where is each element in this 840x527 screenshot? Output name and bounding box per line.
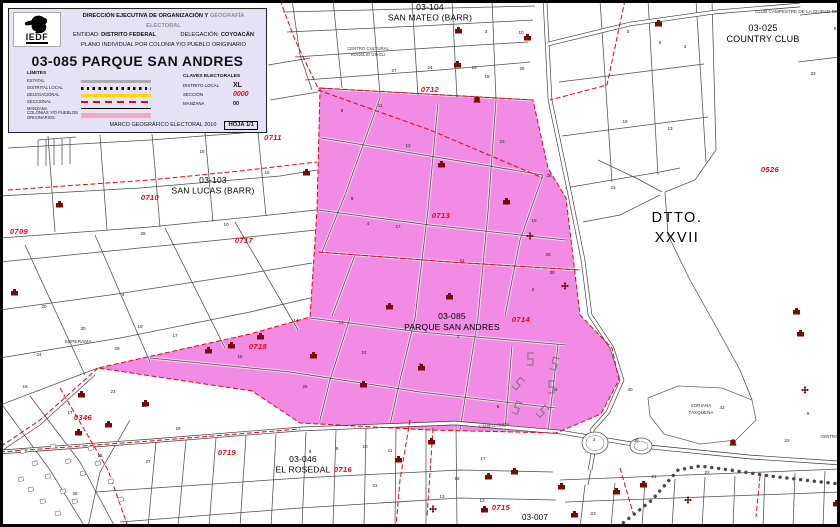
section-number-label: 0719 — [218, 448, 237, 457]
block-number: 15 — [264, 170, 270, 175]
block-number: 10 — [471, 65, 477, 70]
block-number: 6 — [659, 40, 662, 45]
block-number: 23 — [610, 185, 616, 190]
area-label: 03-025 — [748, 23, 777, 33]
map-small-label: CENTRO CULTURAL — [347, 46, 389, 51]
cross-part — [806, 389, 808, 391]
delegation: DELEGACIÓN: COYOACÁN — [180, 31, 254, 41]
cross-part — [564, 285, 566, 287]
tiny-block — [55, 511, 61, 516]
building-roof — [80, 391, 83, 393]
cross-part — [687, 497, 689, 499]
block-number: 16 — [22, 384, 28, 389]
building-roof — [560, 483, 563, 485]
building-body — [11, 291, 18, 296]
tiny-block — [88, 446, 94, 451]
section-number-label: 0714 — [512, 315, 531, 324]
block-number: 6 — [419, 362, 422, 367]
dome-base — [474, 101, 480, 103]
building-body — [360, 383, 367, 388]
block-number: 39 — [633, 438, 639, 443]
building-roof — [573, 511, 576, 513]
tiny-block — [18, 477, 24, 482]
building-body — [571, 513, 578, 518]
section-number-label: 0715 — [492, 503, 511, 512]
tiny-block — [50, 444, 56, 449]
block-number: 26 — [546, 173, 552, 178]
block-number: 19 — [175, 426, 181, 431]
block-number: 17 — [480, 456, 486, 461]
building-body — [228, 344, 235, 349]
clave-value: XL — [233, 82, 242, 89]
block-number: 26 — [302, 384, 308, 389]
building-roof — [305, 169, 308, 171]
cross-part — [432, 510, 434, 512]
building-body — [386, 305, 393, 310]
block-number: 15 — [622, 119, 628, 124]
dove-icon — [24, 15, 50, 33]
block-number: 25 — [545, 252, 551, 257]
block-number: 9 — [807, 411, 810, 416]
clave-row: MANZANA00 — [183, 99, 262, 108]
block-number: 30 — [549, 270, 555, 275]
block-number: 4 — [555, 387, 558, 392]
cross-part — [687, 501, 689, 503]
building-roof — [430, 438, 433, 440]
limit-row: DELEGACIONAL — [27, 92, 175, 99]
tiny-block — [108, 479, 114, 484]
cross-part — [804, 389, 806, 391]
block-number: 8 — [834, 26, 837, 31]
block-number: 20 — [41, 304, 47, 309]
building-roof — [505, 198, 508, 200]
clave-row: SECCIÓN0000 — [183, 90, 262, 99]
building-body — [655, 22, 662, 27]
map-small-label: CLUB CAMPESTRE DE LA CIUDAD DE — [755, 9, 838, 14]
distrital-line-sample — [81, 85, 151, 91]
building-body — [524, 36, 531, 41]
building-body — [613, 490, 620, 495]
logo-text: IEDF — [26, 33, 49, 44]
block-number: 17 — [395, 224, 401, 229]
building-body — [446, 295, 453, 300]
cross-part — [531, 235, 533, 237]
claves-section: CLAVES ELECTORALES DISTRITO LOCALXLSECCI… — [175, 71, 262, 119]
area-label: DTTO. — [652, 210, 703, 226]
clave-label: SECCIÓN — [183, 92, 233, 97]
block-number: 12 — [479, 498, 485, 503]
building-roof — [397, 456, 400, 458]
block-number: 22 — [704, 470, 710, 475]
building-roof — [13, 289, 16, 291]
area-label: SAN LUCAS (BARR) — [171, 186, 254, 196]
block-number: 24 — [36, 352, 42, 357]
building-body — [438, 163, 445, 168]
building-roof — [642, 481, 645, 483]
tiny-block — [32, 461, 38, 466]
area-label: 03-046 — [289, 454, 317, 464]
building-body — [558, 485, 565, 490]
block-number: 16 — [199, 149, 205, 154]
cross-part — [564, 283, 566, 285]
block-number: 27 — [391, 68, 397, 73]
block-number: 9 — [351, 196, 354, 201]
legend-header: IEDF DIRECCIÓN EJECUTIVA DE ORGANIZACIÓN… — [13, 12, 262, 51]
legend-footer: MARCO GEOGRÁFICO ELECTORAL 2010 HOJA 1/1 — [109, 121, 258, 130]
block-number: 4 — [122, 292, 125, 297]
block-number: 29 — [114, 346, 120, 351]
tiny-block — [40, 499, 46, 504]
manzana-line-sample — [81, 106, 151, 112]
cross-part — [685, 499, 687, 501]
building-body — [455, 29, 462, 34]
block-number: 22 — [784, 438, 790, 443]
block-number: 42 — [719, 405, 725, 410]
dome-base — [730, 444, 736, 446]
limit-label: SECCIONAL — [27, 100, 81, 104]
block-number: 10 — [518, 30, 524, 35]
building-body — [56, 203, 63, 208]
building-roof — [513, 468, 516, 470]
building-roof — [230, 342, 233, 344]
building-roof — [615, 488, 618, 490]
area-label: SAN MATEO (BARR) — [388, 13, 472, 23]
area-label: EL ROSEDAL — [275, 465, 330, 475]
building-body — [310, 354, 317, 359]
section-number-label: 0718 — [249, 342, 268, 351]
building-roof — [77, 429, 80, 431]
building-roof — [259, 333, 262, 335]
section-number-label: 0346 — [74, 413, 93, 422]
cross-part — [562, 285, 564, 287]
cross-part — [687, 499, 689, 501]
building-roof — [483, 506, 486, 508]
building-body — [793, 310, 800, 315]
limits-section: LÍMITES ESTATALDISTRITAL LOCALDELEGACION… — [13, 71, 175, 119]
building-roof — [207, 347, 210, 349]
block-number: 17 — [67, 410, 73, 415]
block-number: 40 — [627, 387, 633, 392]
agency-bold: DIRECCIÓN EJECUTIVA DE ORGANIZACIÓN Y — [83, 13, 209, 19]
limit-label: DISTRITAL LOCAL — [27, 86, 81, 90]
building-roof — [448, 293, 451, 295]
tiny-block — [95, 461, 101, 466]
building-roof — [457, 27, 460, 29]
tiny-block — [72, 499, 78, 504]
building-body — [303, 171, 310, 176]
building-body — [511, 470, 518, 475]
building-body — [205, 349, 212, 354]
section-number-label: 0709 — [10, 227, 29, 236]
claves-title: CLAVES ELECTORALES — [183, 74, 262, 79]
block-number: 11 — [388, 448, 393, 453]
block-number: 13 — [338, 320, 344, 325]
block-number: 10 — [362, 444, 368, 449]
cross-part — [802, 389, 804, 391]
tiny-block — [118, 497, 124, 502]
block-number: 24 — [361, 350, 367, 355]
cross-part — [434, 508, 436, 510]
section-number-label: 0717 — [235, 236, 254, 245]
claves-rows: DISTRITO LOCALXLSECCIÓN0000MANZANA00 — [183, 81, 262, 108]
agency-line: DIRECCIÓN EJECUTIVA DE ORGANIZACIÓN Y GE… — [65, 12, 262, 31]
limits-title: LÍMITES — [27, 71, 175, 76]
block-number: 19 — [531, 218, 537, 223]
block-number: 9 — [336, 446, 339, 451]
area-label: 03-007 — [522, 513, 548, 522]
building-roof — [107, 421, 110, 423]
building-roof — [456, 61, 459, 63]
colonia-line-sample — [81, 113, 151, 119]
area-label: XXVII — [655, 230, 700, 246]
block-number: 19 — [137, 324, 143, 329]
building-roof — [487, 473, 490, 475]
section-number-label: 0710 — [141, 193, 160, 202]
block-number: 21 — [372, 483, 378, 488]
tiny-block — [60, 489, 66, 494]
block-number: 28 — [140, 231, 146, 236]
tiny-block — [20, 449, 26, 454]
cross-part — [804, 387, 806, 389]
building-body — [481, 508, 488, 513]
clave-label: DISTRITO LOCAL — [183, 83, 233, 88]
block-number: 12 — [405, 143, 411, 148]
area-label: 03-104 — [416, 2, 444, 12]
limits-rows: ESTATALDISTRITAL LOCALDELEGACIONALSECCIO… — [27, 78, 175, 119]
iedf-logo: IEDF — [13, 12, 61, 47]
cross-part — [432, 506, 434, 508]
building-roof — [312, 352, 315, 354]
entity: ENTIDAD: DISTRITO FEDERAL — [73, 31, 156, 41]
section-number-label: 0716 — [334, 465, 353, 474]
building-body — [797, 332, 804, 337]
legend-body: LÍMITES ESTATALDISTRITAL LOCALDELEGACION… — [13, 71, 262, 119]
block-number: 17 — [172, 333, 178, 338]
limit-label: DELEGACIONAL — [27, 93, 81, 97]
cross-part — [564, 287, 566, 289]
limit-row: ESTATAL — [27, 78, 175, 85]
block-number: 11 — [378, 103, 383, 108]
cross-part — [529, 235, 531, 237]
clave-row: DISTRITO LOCALXL — [183, 81, 262, 90]
block-number: 8 — [341, 108, 344, 113]
building-body — [395, 458, 402, 463]
cross-part — [566, 285, 568, 287]
clave-value: 0000 — [233, 91, 249, 98]
building-roof — [362, 381, 365, 383]
building-body — [78, 393, 85, 398]
building-body — [640, 483, 647, 488]
block-number: 20 — [141, 403, 147, 408]
limit-row: SECCIONAL — [27, 99, 175, 106]
block-number: 3 — [684, 44, 687, 49]
map-small-label: SORIANA — [691, 403, 713, 408]
block-number: 21 — [651, 474, 657, 479]
cross-part — [689, 499, 691, 501]
tiny-block — [45, 474, 51, 479]
building-roof — [388, 303, 391, 305]
tiny-block — [65, 459, 71, 464]
cross-part — [529, 237, 531, 239]
seccional-line-sample — [81, 99, 151, 105]
cross-part — [527, 235, 529, 237]
sheet-number: HOJA 1/1 — [224, 121, 258, 130]
block-number: 2 — [532, 287, 535, 292]
colonia-title: 03-085 PARQUE SAN ANDRES — [13, 53, 262, 69]
block-number: 30 — [80, 326, 86, 331]
block-number: 23 — [590, 511, 596, 516]
block-number: 16 — [237, 354, 243, 359]
building-roof — [799, 330, 802, 332]
building-roof — [440, 161, 443, 163]
section-number-label: 0711 — [264, 133, 282, 142]
limit-label: ESTATAL — [27, 79, 81, 83]
map-small-label: CENTRA — [820, 434, 838, 439]
building-body — [503, 200, 510, 205]
area-label: 03-103 — [199, 175, 227, 185]
delegacional-line-sample — [81, 92, 151, 98]
block-number: 28 — [519, 66, 525, 71]
tiny-block — [80, 471, 86, 476]
block-number: 18 — [97, 453, 103, 458]
building-roof — [795, 308, 798, 310]
cross-part — [432, 508, 434, 510]
building-body — [485, 475, 492, 480]
block-number: 21 — [110, 389, 116, 394]
area-label: PARQUE SAN ANDRES — [404, 322, 500, 332]
map-small-label: ROGELIO USIGLI — [351, 52, 386, 57]
block-number: 18 — [454, 476, 460, 481]
building-roof — [144, 400, 147, 402]
area-label: 03-085 — [438, 311, 466, 321]
block-number: 13 — [667, 126, 673, 131]
cross-part — [529, 233, 531, 235]
block-number: 5 — [497, 404, 500, 409]
block-number: 13 — [439, 494, 445, 499]
block-number: 23 — [499, 139, 505, 144]
block-number: 4 — [367, 221, 370, 226]
limit-label: COLONIAS Y/O PUEBLOS ORIGINARIOS — [27, 111, 81, 120]
clave-label: MANZANA — [183, 101, 233, 106]
marco-text: MARCO GEOGRÁFICO ELECTORAL 2010 — [109, 122, 216, 128]
section-number-label: 0526 — [761, 165, 780, 174]
tiny-block — [28, 487, 34, 492]
block-number: 11 — [460, 258, 465, 263]
map-small-label: SUPERAMA — [65, 339, 93, 345]
building-body — [75, 431, 82, 436]
building-roof — [58, 201, 61, 203]
plan-line: PLANO INDIVIDUAL POR COLONIA Y/O PUEBLO … — [65, 41, 262, 51]
block-number: 24 — [427, 65, 433, 70]
block-number: 5 — [627, 29, 630, 34]
block-number: 14 — [293, 318, 299, 323]
block-number: 3 — [485, 29, 488, 34]
building-body — [428, 440, 435, 445]
section-number-label: 0713 — [432, 211, 451, 220]
building-body — [105, 423, 112, 428]
block-number: 3 — [593, 437, 596, 442]
block-number: 33 — [810, 71, 816, 76]
clave-value: 00 — [233, 101, 239, 107]
limit-row: COLONIAS Y/O PUEBLOS ORIGINARIOS — [27, 112, 175, 119]
electoral-map-sheet: 8111223261719112530291413162426145631024… — [0, 0, 840, 527]
building-roof — [657, 20, 660, 22]
legend-title-block: DIRECCIÓN EJECUTIVA DE ORGANIZACIÓN Y GE… — [65, 12, 262, 51]
building-body — [454, 63, 461, 68]
legend-panel: IEDF DIRECCIÓN EJECUTIVA DE ORGANIZACIÓN… — [8, 8, 267, 133]
section-number-label: 0712 — [421, 85, 440, 94]
entity-line: ENTIDAD: DISTRITO FEDERAL DELEGACIÓN: CO… — [65, 31, 262, 41]
cross-part — [804, 391, 806, 393]
block-number: 28 — [72, 491, 78, 496]
estatal-line-sample — [81, 79, 151, 85]
block-number: 27 — [145, 459, 151, 464]
building-body — [257, 335, 264, 340]
area-label: COUNTRY CLUB — [726, 34, 799, 44]
cross-part — [430, 508, 432, 510]
block-number: 18 — [484, 74, 490, 79]
map-small-label: TAXQUEÑA — [689, 409, 715, 415]
limit-row: DISTRITAL LOCAL — [27, 85, 175, 92]
block-number: 10 — [223, 222, 229, 227]
building-roof — [526, 34, 529, 36]
block-number: 1 — [457, 334, 460, 339]
